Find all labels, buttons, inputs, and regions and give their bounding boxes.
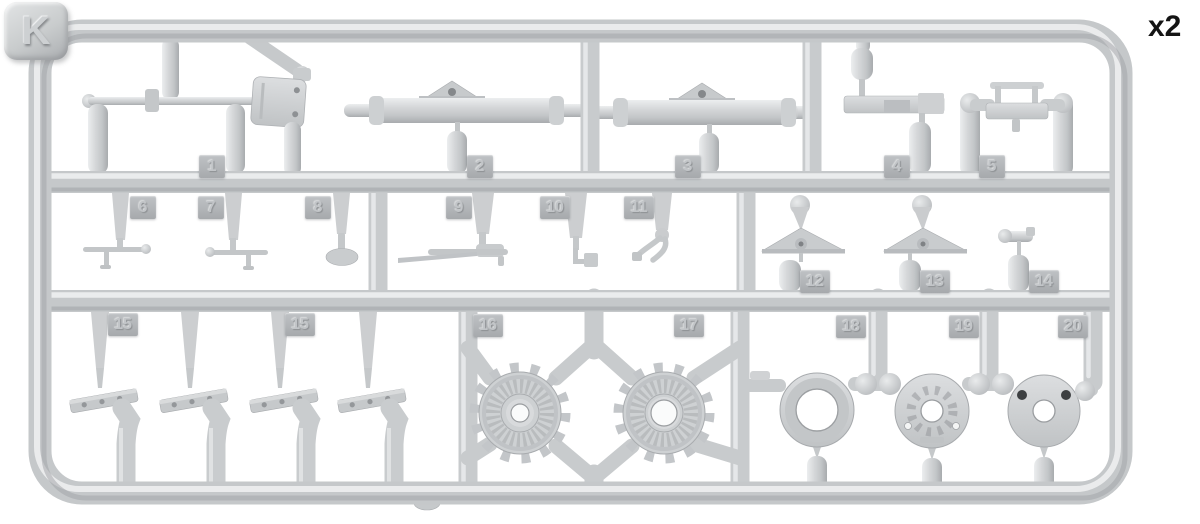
part-tag-5: 5 [979,155,1005,178]
part-1-shovel [82,38,311,176]
part-tag-13: 13 [920,270,950,293]
part-18-ring [780,373,854,447]
part-tag-7: 7 [198,196,224,219]
sprue-frame-drawing [0,0,1200,524]
part-tag-2: 2 [467,155,493,178]
part-tag-20: 20 [1058,315,1088,338]
part-3-barrel [592,83,820,174]
part-4-bracket [844,36,944,174]
part-15-hinge-brackets [69,312,406,488]
sprue-quantity-label: x2 [1148,10,1198,44]
part-20-holed-disc [1008,375,1080,447]
part-19-splined-disc [895,374,969,448]
part-tag-4: 4 [884,155,910,178]
part-5-mount-frame [960,82,1073,176]
part-tag-18: 18 [836,315,866,338]
part-tag-6: 6 [130,196,156,219]
part-tag-16: 16 [473,314,503,337]
sprue-illustration: K x2 1 2 3 4 5 6 7 8 9 10 11 12 13 14 15… [0,0,1200,524]
part-tag-8: 8 [305,196,331,219]
part-tag-14: 14 [1029,270,1059,293]
part-tag-15b: 15 [285,313,315,336]
sprue-letter-tab: K [4,2,68,60]
part-tag-19: 19 [949,315,979,338]
part-tag-15a: 15 [108,313,138,336]
sprue-letter: K [22,11,51,51]
part-tag-9: 9 [446,196,472,219]
part-tag-17: 17 [674,314,704,337]
part-tag-10: 10 [540,196,570,219]
part-tag-11: 11 [624,196,654,219]
part-tag-3: 3 [675,155,701,178]
part-tag-12: 12 [800,270,830,293]
part-tag-1: 1 [199,155,225,178]
